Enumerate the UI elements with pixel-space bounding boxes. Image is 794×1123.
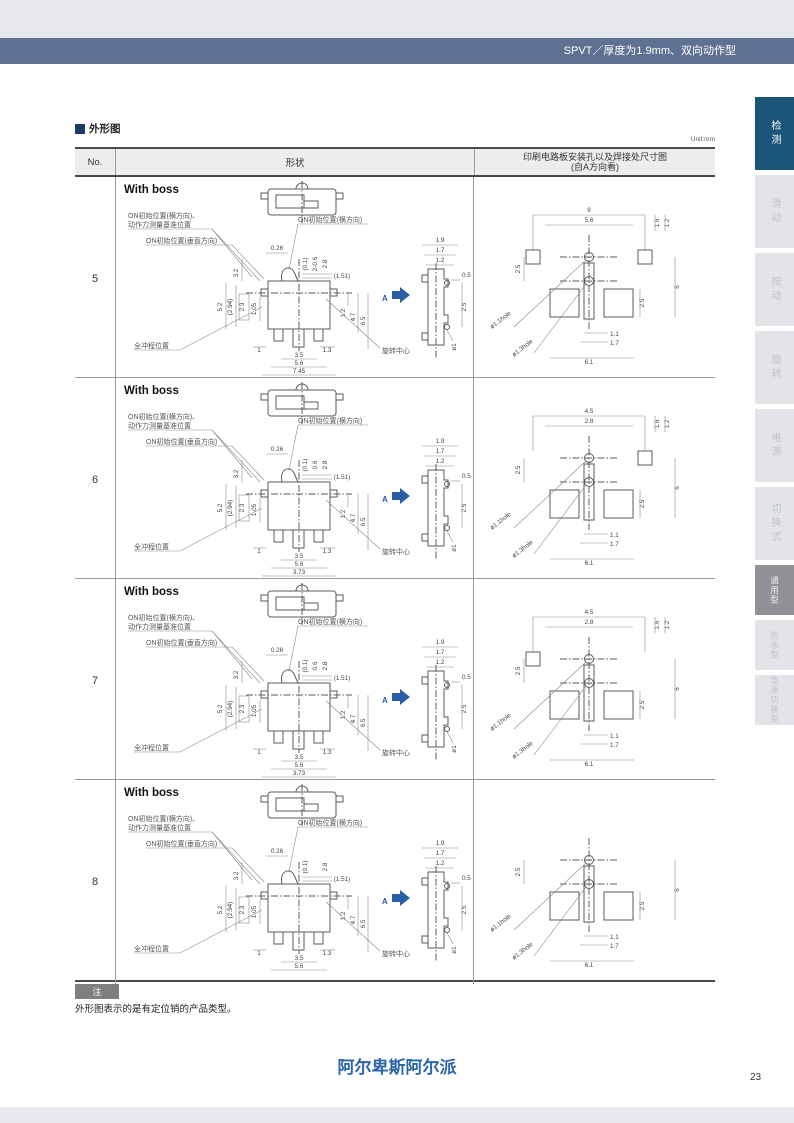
section-square-icon xyxy=(75,124,85,134)
dim-65: 6.5 xyxy=(360,919,367,928)
dim-13: 1.3 xyxy=(323,950,332,957)
label-on-vertical: ON初始位置(垂直方向) xyxy=(146,839,217,848)
sidebar-tab-power[interactable]: 电源 xyxy=(755,409,794,482)
pcb-top-dims: 4.5 2.8 1.6 1.2 xyxy=(533,609,671,652)
shape-type-label: With boss xyxy=(124,184,179,196)
sidebar-tab-slide[interactable]: 滑动 xyxy=(755,175,794,248)
dim-side-05: 0.5 xyxy=(462,272,471,279)
dim-side-dia1: ø1 xyxy=(451,343,458,351)
header-pcb-line2: (自A方向看) xyxy=(571,162,619,172)
table-header: No. 形状 印刷电路板安装孔以及焊接处尺寸图 (自A方向看) xyxy=(75,147,715,177)
dim-pcb-11: 1.1 xyxy=(610,331,619,338)
dim-294: (2.94) xyxy=(227,701,234,717)
note-text: 外形图表示的是有定位销的产品类型。 xyxy=(75,1001,237,1015)
dim-294: (2.94) xyxy=(227,500,234,516)
table-row: 6 With boss ON初始位置(横方向)、 动作力测量基准位置 xyxy=(75,378,715,579)
dim-pcb-11: 1.1 xyxy=(610,532,619,539)
dim-65: 6.5 xyxy=(360,517,367,526)
dim-13: 1.3 xyxy=(323,347,332,354)
label-on-ref-1: ON初始位置(横方向)、 xyxy=(128,814,199,823)
label-full-stroke: 全冲程位置 xyxy=(134,743,169,752)
dim-pcb-hole1-group: ø1.1hole xyxy=(489,511,513,532)
shape-drawing-cell: With boss ON初始位置(横方向)、 动作力测量基准位置 ON初始位置(… xyxy=(115,579,474,783)
label-full-stroke: 全冲程位置 xyxy=(134,542,169,551)
header-pcb-line1: 印刷电路板安装孔以及焊接处尺寸图 xyxy=(523,152,667,162)
pcb-drawing-cell: 2.5 6 2.5 1.1 1.7 6.1 ø1.1hole ø1.3hole xyxy=(474,780,715,984)
sidebar-tab-general[interactable]: 通用型 xyxy=(755,565,794,615)
dim-1: 1 xyxy=(257,347,261,354)
dim-pcb-hole1: ø1.1hole xyxy=(489,310,513,331)
table-row: 5 With boss ON初始位置(横方向)、 动作力测量基准位置 xyxy=(75,177,715,378)
label-on-ref-2: 动作力测量基准位置 xyxy=(128,622,191,631)
dim-65: 6.5 xyxy=(360,316,367,325)
dim-side-17: 1.7 xyxy=(436,649,445,656)
view-direction-arrow-icon xyxy=(392,488,410,504)
side-view: 1.9 1.7 1.2 0.5 xyxy=(422,639,471,761)
dim-026: 0.26 xyxy=(271,446,284,453)
dim-w3: 3.73 xyxy=(293,569,306,576)
shape-drawing: ON初始位置(横方向)、 动作力测量基准位置 ON初始位置(垂直方向) ON初始… xyxy=(116,177,475,376)
section-title-text: 外形图 xyxy=(89,121,121,136)
section-title: 外形图 xyxy=(75,121,121,136)
dim-52: 5.2 xyxy=(217,905,224,914)
page-bottom-margin xyxy=(0,1107,794,1123)
dim-23: 2.3 xyxy=(239,704,246,713)
sidebar-tab-detect[interactable]: 检测 xyxy=(755,97,794,170)
dim-pcb-top1: 9 xyxy=(587,207,591,214)
header-pcb: 印刷电路板安装孔以及焊接处尺寸图 (自A方向看) xyxy=(474,149,715,175)
dim-side-12: 1.2 xyxy=(436,860,445,867)
shape-type-label: With boss xyxy=(124,385,179,397)
dim-151: (1.51) xyxy=(334,876,350,883)
dim-pcb-hole2-group: ø1.3hole xyxy=(511,539,535,560)
label-on-ref-2: 动作力测量基准位置 xyxy=(128,421,191,430)
dim-pcb-left-25: 2.5 xyxy=(515,465,522,474)
header-no: No. xyxy=(75,149,115,175)
shape-drawing-cell: With boss ON初始位置(横方向)、 动作力测量基准位置 ON初始位置(… xyxy=(115,378,474,582)
dim-side-17: 1.7 xyxy=(436,850,445,857)
dim-w3-group: 3.73 xyxy=(262,770,336,777)
dim-01: (0.1) xyxy=(302,258,309,271)
dim-pcb-top2: 5.6 xyxy=(585,217,594,224)
dim-23: 2.3 xyxy=(239,503,246,512)
dim-side-05: 0.5 xyxy=(462,674,471,681)
dim-151: (1.51) xyxy=(334,474,350,481)
dim-026: 0.26 xyxy=(271,245,284,252)
category-sidebar: 检测 滑动 按动 旋转 电源 切换式 通用型 防水型 急速切换型 xyxy=(755,97,794,725)
table-row: 8 With boss ON初始位置(横方向)、 动作力测量基准位置 xyxy=(75,780,715,982)
dim-side-12: 1.2 xyxy=(436,458,445,465)
dim-pcb-left-25: 2.5 xyxy=(515,264,522,273)
dim-pcb-17: 1.7 xyxy=(610,742,619,749)
dim-pcb-hole1: ø1.1hole xyxy=(489,913,513,934)
dim-52: 5.2 xyxy=(217,503,224,512)
dim-side-19: 1.9 xyxy=(436,237,445,244)
dim-026: 0.26 xyxy=(271,848,284,855)
dim-w1: 3.5 xyxy=(295,955,304,962)
dim-w1: 3.5 xyxy=(295,553,304,560)
dim-47: 4.7 xyxy=(350,915,357,924)
dim-105: 1.05 xyxy=(251,302,258,315)
dim-151: (1.51) xyxy=(334,675,350,682)
label-on-ref-2: 动作力测量基准位置 xyxy=(128,823,191,832)
dim-pcb-top2: 2.8 xyxy=(585,619,594,626)
label-on-vertical: ON初始位置(垂直方向) xyxy=(146,437,217,446)
dim-28: 2.8 xyxy=(322,259,329,268)
dim-pcb-11: 1.1 xyxy=(610,733,619,740)
pcb-top-dims: 9 5.6 1.6 1.2 xyxy=(533,207,671,250)
dim-side-19: 1.9 xyxy=(436,840,445,847)
dim-pcb-top1: 4.5 xyxy=(585,609,594,616)
datasheet-page: SPVT／厚度为1.9mm、双向动作型 检测 滑动 按动 旋转 电源 切换式 通… xyxy=(0,0,794,1123)
shape-type-label: With boss xyxy=(124,586,179,598)
dim-w3: 7.45 xyxy=(293,368,306,375)
dim-pcb-61: 6.1 xyxy=(585,560,594,567)
dim-pcb-17: 1.7 xyxy=(610,541,619,548)
dim-pcb-17: 1.7 xyxy=(610,943,619,950)
dim-w2: 5.6 xyxy=(295,561,304,568)
view-direction-label: A xyxy=(382,897,388,906)
dim-13: 1.3 xyxy=(323,548,332,555)
view-direction-arrow-icon xyxy=(392,890,410,906)
dim-52: 5.2 xyxy=(217,704,224,713)
label-on-lateral: ON初始位置(横方向) xyxy=(298,416,362,425)
dim-47: 4.7 xyxy=(350,714,357,723)
sidebar-tab-toggle[interactable]: 切换式 xyxy=(755,487,794,560)
dim-side-dia1: ø1 xyxy=(451,544,458,552)
sidebar-tab-quick-switch[interactable]: 急速切换型 xyxy=(755,675,794,725)
dim-side-05: 0.5 xyxy=(462,875,471,882)
side-view: 1.9 1.7 1.2 0.5 xyxy=(422,840,471,962)
dim-pcb-hole1-group: ø1.1hole xyxy=(489,712,513,733)
dim-pcb-hole2-group: ø1.3hole xyxy=(511,338,535,359)
dim-pcb-hole2-group: ø1.3hole xyxy=(511,941,535,962)
dim-23: 2.3 xyxy=(239,905,246,914)
page-header-bar: SPVT／厚度为1.9mm、双向动作型 xyxy=(0,38,794,64)
dim-pcb-hole2: ø1.3hole xyxy=(511,941,535,962)
label-full-stroke: 全冲程位置 xyxy=(134,944,169,953)
dim-32: 3.2 xyxy=(233,871,240,880)
dim-1: 1 xyxy=(257,950,261,957)
pcb-drawing: 4.5 2.8 1.6 1.2 2.5 6 2.5 1.1 1.7 xyxy=(474,579,714,778)
dim-pcb-left-25: 2.5 xyxy=(515,867,522,876)
dim-pcb-hole2-group: ø1.3hole xyxy=(511,740,535,761)
row-number: 5 xyxy=(75,177,115,381)
dim-151: (1.51) xyxy=(334,273,350,280)
dim-pcb-hole1-group: ø1.1hole xyxy=(489,913,513,934)
dim-pcb-61: 6.1 xyxy=(585,359,594,366)
row-number: 7 xyxy=(75,579,115,783)
view-direction-arrow-icon xyxy=(392,689,410,705)
dim-06: 0.6 xyxy=(312,460,319,469)
label-full-stroke: 全冲程位置 xyxy=(134,341,169,350)
label-rotation-center: 旋转中心 xyxy=(382,547,410,556)
dim-105: 1.05 xyxy=(251,905,258,918)
dim-pcb-11: 1.1 xyxy=(610,934,619,941)
pcb-drawing-cell: 4.5 2.8 1.6 1.2 2.5 6 2.5 1.1 1.7 xyxy=(474,378,715,582)
dim-105: 1.05 xyxy=(251,704,258,717)
note-badge: 注 xyxy=(75,984,119,999)
dim-23: 2.3 xyxy=(239,302,246,311)
label-on-lateral: ON初始位置(横方向) xyxy=(298,215,362,224)
dim-side-05: 0.5 xyxy=(462,473,471,480)
pcb-top-dims: 4.5 2.8 1.6 1.2 xyxy=(533,408,671,451)
label-on-ref-1: ON初始位置(横方向)、 xyxy=(128,613,199,622)
dim-pcb-61: 6.1 xyxy=(585,761,594,768)
dim-28: 2.8 xyxy=(322,862,329,871)
label-on-lateral: ON初始位置(横方向) xyxy=(298,617,362,626)
pcb-drawing: 9 5.6 1.6 1.2 2.5 6 2.5 1.1 1.7 xyxy=(474,177,714,376)
dim-32: 3.2 xyxy=(233,469,240,478)
sidebar-tab-rotary[interactable]: 旋转 xyxy=(755,331,794,404)
label-rotation-center: 旋转中心 xyxy=(382,346,410,355)
dim-w3-group: 7.45 xyxy=(262,368,336,375)
shape-drawing-cell: With boss ON初始位置(横方向)、 动作力测量基准位置 ON初始位置(… xyxy=(115,177,474,381)
dim-06: 2-0.6 xyxy=(312,256,319,271)
dim-pcb-hole2: ø1.3hole xyxy=(511,338,535,359)
dim-1: 1 xyxy=(257,749,261,756)
pcb-pads xyxy=(526,235,652,329)
dim-01: (0.1) xyxy=(302,459,309,472)
pcb-drawing-cell: 9 5.6 1.6 1.2 2.5 6 2.5 1.1 1.7 xyxy=(474,177,715,381)
dim-pcb-hole1: ø1.1hole xyxy=(489,511,513,532)
label-on-ref-1: ON初始位置(横方向)、 xyxy=(128,211,199,220)
label-rotation-center: 旋转中心 xyxy=(382,949,410,958)
dim-32: 3.2 xyxy=(233,670,240,679)
dim-13: 1.3 xyxy=(323,749,332,756)
dim-w1: 3.5 xyxy=(295,754,304,761)
dim-pcb-hole2: ø1.3hole xyxy=(511,539,535,560)
dim-w2: 5.6 xyxy=(295,963,304,970)
view-direction-label: A xyxy=(382,294,388,303)
brand-logo-text: 阿尔卑斯阿尔派 xyxy=(0,1053,794,1078)
dim-pcb-hole1-group: ø1.1hole xyxy=(489,310,513,331)
dim-01: (0.1) xyxy=(302,861,309,874)
dim-w3-group: 3.73 xyxy=(262,569,336,576)
dim-pcb-top2: 2.8 xyxy=(585,418,594,425)
dim-w3: 3.73 xyxy=(293,770,306,777)
page-top-margin xyxy=(0,0,794,38)
dim-w2: 5.6 xyxy=(295,360,304,367)
dim-294: (2.94) xyxy=(227,902,234,918)
table-body: 5 With boss ON初始位置(横方向)、 动作力测量基准位置 xyxy=(75,177,715,982)
unit-label: Unit:mm xyxy=(75,136,715,143)
dim-32: 3.2 xyxy=(233,268,240,277)
outline-table: No. 形状 印刷电路板安装孔以及焊接处尺寸图 (自A方向看) 5 With b… xyxy=(75,147,715,982)
shape-drawing-cell: With boss ON初始位置(横方向)、 动作力测量基准位置 ON初始位置(… xyxy=(115,780,474,984)
dim-pcb-61: 6.1 xyxy=(585,962,594,969)
row-number: 6 xyxy=(75,378,115,582)
shape-type-label: With boss xyxy=(124,787,179,799)
dim-side-19: 1.9 xyxy=(436,438,445,445)
dim-47: 4.7 xyxy=(350,513,357,522)
label-on-ref-2: 动作力测量基准位置 xyxy=(128,220,191,229)
dim-026: 0.26 xyxy=(271,647,284,654)
dim-01: (0.1) xyxy=(302,660,309,673)
dim-side-12: 1.2 xyxy=(436,257,445,264)
dim-294: (2.94) xyxy=(227,299,234,315)
pcb-drawing: 2.5 6 2.5 1.1 1.7 6.1 ø1.1hole ø1.3hole xyxy=(474,780,714,979)
view-direction-arrow-icon xyxy=(392,287,410,303)
dim-pcb-hole1: ø1.1hole xyxy=(489,712,513,733)
header-shape: 形状 xyxy=(115,149,474,175)
dim-47: 4.7 xyxy=(350,312,357,321)
dim-65: 6.5 xyxy=(360,718,367,727)
page-number: 23 xyxy=(750,1072,761,1083)
dim-06: 0.6 xyxy=(312,661,319,670)
table-row: 7 With boss ON初始位置(横方向)、 动作力测量基准位置 xyxy=(75,579,715,780)
view-direction-label: A xyxy=(382,696,388,705)
dim-pcb-top1: 4.5 xyxy=(585,408,594,415)
dim-side-17: 1.7 xyxy=(436,448,445,455)
dim-side-dia1: ø1 xyxy=(451,745,458,753)
row-number: 8 xyxy=(75,780,115,984)
label-on-vertical: ON初始位置(垂直方向) xyxy=(146,638,217,647)
shape-drawing: ON初始位置(横方向)、 动作力测量基准位置 ON初始位置(垂直方向) ON初始… xyxy=(116,780,475,979)
dim-w2: 5.6 xyxy=(295,762,304,769)
pcb-drawing-cell: 4.5 2.8 1.6 1.2 2.5 6 2.5 1.1 1.7 xyxy=(474,579,715,783)
sidebar-tab-waterproof[interactable]: 防水型 xyxy=(755,620,794,670)
dim-28: 2.8 xyxy=(322,460,329,469)
side-view: 1.9 1.7 1.2 0.5 xyxy=(422,237,471,359)
label-on-lateral: ON初始位置(横方向) xyxy=(298,818,362,827)
dim-side-17: 1.7 xyxy=(436,247,445,254)
sidebar-tab-push[interactable]: 按动 xyxy=(755,253,794,326)
pcb-pads xyxy=(550,436,652,530)
dim-side-12: 1.2 xyxy=(436,659,445,666)
pcb-pads xyxy=(526,637,633,731)
dim-pcb-hole2: ø1.3hole xyxy=(511,740,535,761)
shape-drawing: ON初始位置(横方向)、 动作力测量基准位置 ON初始位置(垂直方向) ON初始… xyxy=(116,579,475,778)
dim-1: 1 xyxy=(257,548,261,555)
dim-w1: 3.5 xyxy=(295,352,304,359)
dim-side-dia1: ø1 xyxy=(451,946,458,954)
dim-pcb-left-25: 2.5 xyxy=(515,666,522,675)
side-view: 1.9 1.7 1.2 0.5 xyxy=(422,438,471,560)
label-on-ref-1: ON初始位置(横方向)、 xyxy=(128,412,199,421)
label-on-vertical: ON初始位置(垂直方向) xyxy=(146,236,217,245)
dim-side-19: 1.9 xyxy=(436,639,445,646)
dim-pcb-17: 1.7 xyxy=(610,340,619,347)
dim-105: 1.05 xyxy=(251,503,258,516)
view-direction-label: A xyxy=(382,495,388,504)
label-rotation-center: 旋转中心 xyxy=(382,748,410,757)
pcb-drawing: 4.5 2.8 1.6 1.2 2.5 6 2.5 1.1 1.7 xyxy=(474,378,714,577)
dim-28: 2.8 xyxy=(322,661,329,670)
dim-52: 5.2 xyxy=(217,302,224,311)
shape-drawing: ON初始位置(横方向)、 动作力测量基准位置 ON初始位置(垂直方向) ON初始… xyxy=(116,378,475,577)
